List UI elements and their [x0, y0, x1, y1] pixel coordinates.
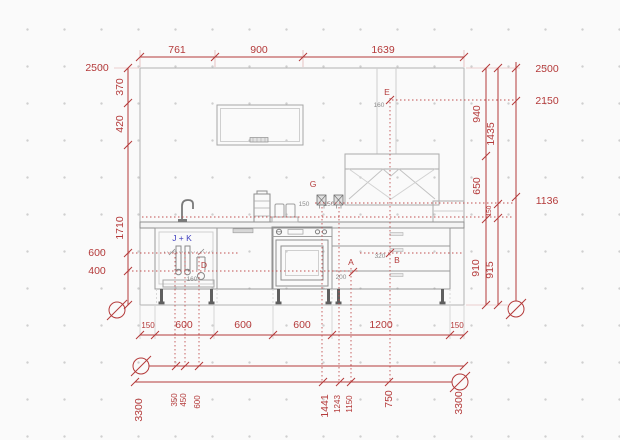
base-dim-6: 150 — [450, 322, 463, 330]
axis-bottom-mark-1: 1441 — [320, 394, 331, 417]
axis-top-mark-2: 450 — [180, 393, 188, 406]
left-chain-dim-2: 420 — [115, 115, 126, 133]
point-dim-g-left: 150 — [299, 202, 310, 209]
point-label-g: G — [310, 180, 317, 189]
right-level-1: 2500 — [535, 64, 558, 75]
axis-top-mark-3: 600 — [194, 395, 202, 408]
top-dim-3: 1639 — [371, 45, 394, 56]
right-level-3: 1136 — [536, 196, 559, 207]
base-dim-2: 600 — [175, 320, 193, 331]
point-dim-b: 320 — [375, 254, 386, 261]
base-dim-5: 1200 — [369, 320, 392, 331]
left-chain-dim-1: 370 — [115, 78, 126, 96]
kitchen-elevation-drawing: 761 900 1639 2500 2500 2150 1136 370 420… — [0, 0, 620, 440]
right-level-2: 2150 — [535, 96, 558, 107]
point-dim-a: 200 — [336, 275, 347, 282]
right-mid-dim-2: 150 — [487, 206, 494, 217]
left-height-600: 600 — [88, 248, 106, 259]
point-label-b: B — [394, 256, 400, 265]
axis-bottom-total: 3300 — [454, 391, 465, 414]
right-inner-dim-3: 910 — [471, 259, 482, 277]
axis-bottom-mark-3: 1150 — [346, 395, 354, 412]
overall-height-left: 2500 — [85, 63, 108, 74]
point-dim-g-right: 150 — [324, 202, 335, 209]
point-label-d: D — [201, 261, 207, 270]
base-dim-3: 600 — [234, 320, 252, 331]
point-label-e: E — [384, 88, 390, 97]
base-dim-1: 150 — [141, 322, 154, 330]
axis-bottom-mark-4: 750 — [384, 390, 395, 408]
dimension-text-overlay: 761 900 1639 2500 2500 2150 1136 370 420… — [0, 0, 620, 440]
left-height-400: 400 — [88, 266, 106, 277]
point-label-jk: J + K — [172, 234, 192, 243]
right-inner-dim-2: 650 — [472, 177, 483, 195]
point-dim-e: 160 — [374, 103, 385, 110]
axis-top-mark-1: 350 — [171, 393, 179, 406]
point-label-a: A — [348, 258, 354, 267]
right-inner-dim-1: 940 — [472, 105, 483, 123]
right-mid-dim-3: 915 — [485, 261, 496, 279]
top-dim-1: 761 — [168, 45, 186, 56]
axis-bottom-mark-2: 1243 — [334, 395, 342, 413]
left-chain-dim-3: 1710 — [115, 216, 126, 239]
base-dim-4: 600 — [293, 320, 311, 331]
top-dim-2: 900 — [250, 45, 268, 56]
right-mid-dim-1: 1435 — [486, 122, 497, 145]
axis-top-total: 3300 — [134, 398, 145, 421]
point-dim-d: 160 — [187, 277, 198, 284]
